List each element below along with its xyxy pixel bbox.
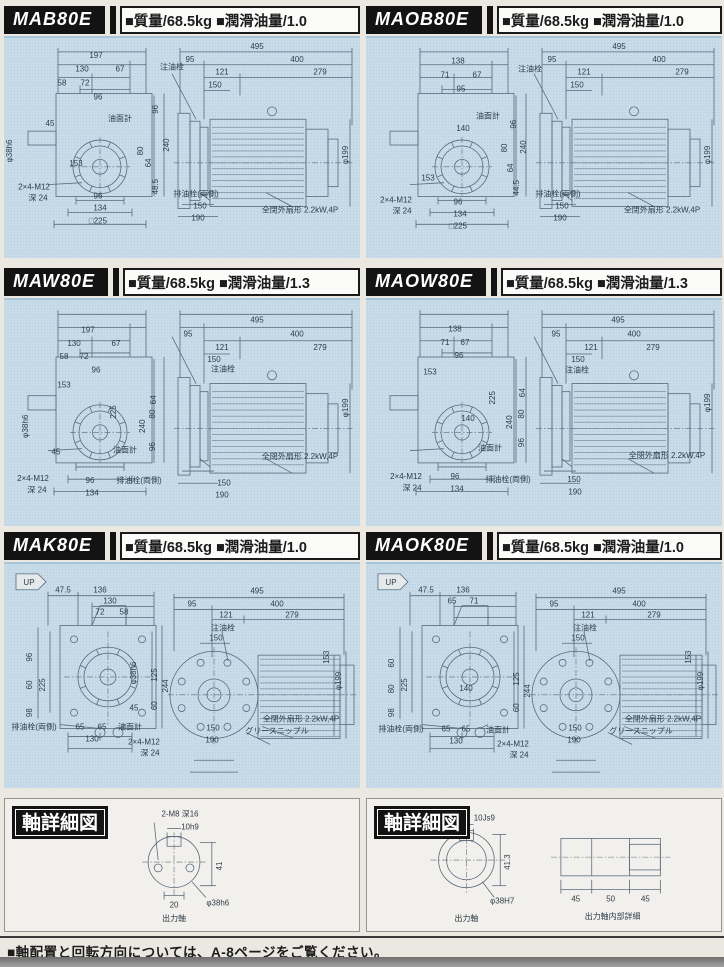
dim-label: 225 [488, 390, 497, 404]
dim-label: 98 [387, 708, 396, 717]
dim-label: 出力軸内部詳細 [585, 911, 641, 921]
dim-label: 190 [553, 213, 567, 222]
spec-label: ■質量/68.5kg ■潤滑油量/1.0 [497, 532, 722, 560]
dim-label: φ199 [696, 671, 705, 690]
model-label: MAB80E [4, 6, 105, 34]
dim-label: 197 [89, 51, 103, 60]
dim-label: 80 [136, 146, 145, 155]
dim-label: 150 [217, 478, 231, 487]
dim-label: グリースニップル [245, 726, 309, 736]
dim-label: 150 [208, 81, 222, 90]
dim-label: φ199 [703, 145, 712, 164]
dim-label: 153 [423, 367, 437, 376]
dim-label: 64 [144, 158, 153, 167]
dim-label: 240 [138, 419, 147, 433]
dim-label: φ38h6 [5, 139, 14, 162]
dim-label: 96 [151, 104, 160, 113]
dim-label: 190 [568, 487, 582, 496]
dim-label: 400 [652, 55, 666, 64]
technical-drawing-area: 19713067587296注油栓45油面計φ38h61532×4-M12深 2… [4, 36, 360, 258]
dim-label: 全閉外扇形 2.2kW,4P [624, 204, 700, 214]
dim-label: φ38h6 [129, 661, 138, 684]
technical-drawing: UP47.51361307258966098225φ38h64524412560… [4, 562, 360, 788]
shaft-detail-panel-left: 軸詳細図 2-M8 深1610h94120φ38h6出力軸 [4, 798, 360, 932]
dim-label: 150 [209, 633, 223, 642]
dim-label: 495 [250, 587, 264, 596]
dim-label: 注油栓 [573, 622, 597, 632]
dim-label: 96 [25, 652, 34, 661]
dimension-labels: 19713067587296注油栓45油面計φ38h61532×4-M12深 2… [5, 42, 350, 225]
model-panel-maow80e: MAOW80E ■質量/68.5kg ■潤滑油量/1.3 13871679615… [366, 268, 722, 526]
drawing-geometry [390, 48, 716, 228]
dimension-labels: 19713067587296153225φ38h6452×4-M12深 2496… [17, 315, 350, 499]
dim-label: 60 [387, 658, 396, 667]
dim-label: 2×4-M12 [128, 737, 160, 746]
dim-label: グリースニップル [609, 726, 673, 736]
dim-label: 225 [109, 405, 118, 419]
dimension-labels: UP47.5136657160809822514024412560排油栓(両側)… [378, 578, 705, 759]
shaft-detail-title: 軸詳細図 [374, 806, 470, 839]
dim-label: 油面計 [476, 110, 500, 120]
dim-label: 41 [215, 861, 224, 870]
dim-label: 197 [81, 326, 95, 335]
technical-drawing-area: UP47.5136657160809822514024412560排油栓(両側)… [366, 562, 722, 788]
model-label: MAOK80E [366, 532, 482, 560]
shaft-detail-title: 軸詳細図 [12, 806, 108, 839]
dim-label: 121 [581, 611, 595, 620]
dim-label: 72 [96, 608, 105, 617]
dim-label: 80 [387, 684, 396, 693]
spec-label: ■質量/68.5kg ■潤滑油量/1.0 [497, 6, 722, 34]
dim-label: 出力軸 [162, 913, 186, 923]
dim-label: 排油栓(両側) [11, 722, 57, 732]
panel-header: MAOB80E ■質量/68.5kg ■潤滑油量/1.0 [366, 6, 722, 34]
dim-label: 注油栓 [518, 64, 542, 74]
dim-label: 注油栓 [160, 62, 184, 72]
dim-label: 排油栓(両側) [378, 724, 424, 734]
dim-label: 400 [627, 330, 641, 339]
dim-label: 279 [646, 343, 660, 352]
dim-label: 150 [555, 201, 569, 210]
dimension-labels: 138716795140油面計96806424044.51532×4-M12深 … [380, 42, 712, 230]
dim-label: 153 [69, 159, 83, 168]
dim-label: 244 [523, 684, 532, 698]
dim-label: 138 [451, 57, 465, 66]
dim-label: 125 [512, 672, 521, 686]
dim-label: 80 [517, 409, 526, 419]
dim-label: φ199 [341, 398, 350, 417]
dim-label: 136 [93, 586, 107, 595]
dim-label: 45 [46, 119, 55, 128]
drawing-geometry [142, 823, 216, 900]
dim-label: φ38h6 [206, 898, 229, 907]
dim-label: 全閉外扇形 2.2kW,4P [629, 450, 705, 460]
technical-drawing-area: 138716795140油面計96806424044.51532×4-M12深 … [366, 36, 722, 258]
dim-label: 495 [250, 315, 264, 324]
dim-label: 96 [509, 119, 518, 128]
spec-label: ■質量/68.5kg ■潤滑油量/1.3 [501, 268, 722, 296]
model-label: MAOB80E [366, 6, 482, 34]
dim-label: 134 [93, 203, 107, 212]
dim-label: 油面計 [113, 445, 137, 455]
dim-label: 150 [571, 633, 585, 642]
dim-label: 95 [548, 55, 557, 64]
dim-label: 2×4-M12 [497, 739, 529, 748]
dim-label: 60 [512, 703, 521, 712]
dim-label: 出力軸 [455, 913, 479, 923]
dim-label: 153 [421, 174, 435, 183]
dim-label: 96 [454, 198, 463, 207]
dim-label: 95 [184, 330, 193, 339]
technical-drawing: 19713067587296153225φ38h6452×4-M12深 2496… [4, 298, 360, 526]
dim-label: 138 [448, 325, 462, 334]
shaft-detail-panel-right: 軸詳細図 10Js941.3φ38H7出力軸455045出力軸内部詳細 [366, 798, 722, 932]
dim-label: 2×4-M12 [390, 472, 422, 481]
dim-label: 排油栓(両側) [485, 474, 531, 484]
dim-label: 495 [250, 42, 264, 51]
dim-label: 41.3 [503, 854, 512, 870]
dim-label: □225 [449, 221, 468, 230]
dim-label: 130 [75, 65, 89, 74]
dim-label: 95 [550, 600, 559, 609]
dim-label: 65 [448, 597, 457, 606]
dim-label: φ199 [703, 393, 712, 412]
footer-rule [0, 936, 724, 938]
dim-label: 134 [85, 488, 99, 497]
dim-label: 45 [130, 704, 139, 713]
dimension-labels: UP47.51361307258966098225φ38h64524412560… [11, 578, 343, 757]
dim-label: 67 [116, 65, 125, 74]
dim-label: 72 [81, 79, 90, 88]
dim-label: φ199 [334, 671, 343, 690]
dim-label: 71 [441, 338, 450, 347]
dim-label: 190 [205, 735, 219, 744]
dim-label: 98 [25, 708, 34, 717]
dimension-labels: 2-M8 深1610h94120φ38h6出力軸 [161, 810, 229, 923]
dim-label: 60 [25, 680, 34, 689]
model-panel-maw80e: MAW80E ■質量/68.5kg ■潤滑油量/1.3 197130675872… [4, 268, 360, 526]
dim-label: 油面計 [118, 722, 142, 732]
dim-label: 96 [86, 476, 95, 485]
dim-label: 153 [684, 650, 693, 664]
dim-label: 排油栓(両側) [173, 189, 219, 199]
dim-label: 279 [285, 611, 299, 620]
row-2: MAW80E ■質量/68.5kg ■潤滑油量/1.3 197130675872… [0, 268, 724, 526]
dim-label: UP [385, 578, 396, 587]
dim-label: 96 [455, 351, 464, 360]
model-panel-maob80e: MAOB80E ■質量/68.5kg ■潤滑油量/1.0 13871679514… [366, 6, 722, 258]
spec-label: ■質量/68.5kg ■潤滑油量/1.0 [120, 532, 360, 560]
dim-label: 240 [505, 415, 514, 429]
dimension-labels: 10Js941.3φ38H7出力軸455045出力軸内部詳細 [455, 814, 651, 923]
dim-label: 150 [567, 475, 581, 484]
dim-label: 244 [161, 679, 170, 693]
dim-label: 130 [103, 597, 117, 606]
header-divider [110, 532, 116, 560]
model-label: MAK80E [4, 532, 105, 560]
dim-label: φ38H7 [490, 896, 514, 905]
dim-label: 67 [461, 338, 470, 347]
panel-header: MAK80E ■質量/68.5kg ■潤滑油量/1.0 [4, 532, 360, 560]
dim-label: 65 [98, 723, 107, 732]
dim-label: 深 24 [140, 748, 160, 757]
dim-label: 150 [571, 355, 585, 364]
panel-header: MAB80E ■質量/68.5kg ■潤滑油量/1.0 [4, 6, 360, 34]
dim-label: 2×4-M12 [380, 196, 412, 205]
model-label: MAW80E [4, 268, 108, 296]
dim-label: □225 [89, 216, 108, 225]
dim-label: 72 [80, 352, 89, 361]
header-divider [491, 268, 497, 296]
dim-label: 121 [577, 68, 591, 77]
dim-label: 150 [207, 355, 221, 364]
dim-label: 2-M8 深16 [161, 810, 199, 819]
dim-label: 121 [215, 343, 229, 352]
technical-drawing: UP47.5136657160809822514024412560排油栓(両側)… [366, 562, 722, 788]
spec-label: ■質量/68.5kg ■潤滑油量/1.0 [120, 6, 360, 34]
dim-label: 400 [270, 600, 284, 609]
dim-label: 190 [215, 490, 229, 499]
dim-label: φ199 [341, 145, 350, 164]
dim-label: 44.5 [512, 179, 521, 195]
dim-label: 10Js9 [474, 814, 496, 823]
dim-label: 油面計 [108, 113, 132, 123]
dim-label: 67 [112, 339, 121, 348]
dim-label: 240 [162, 138, 171, 152]
dim-label: 134 [450, 484, 464, 493]
bottom-bar [0, 957, 724, 967]
row-3: MAK80E ■質量/68.5kg ■潤滑油量/1.0 UP47.5136130… [0, 532, 724, 788]
header-divider [113, 268, 119, 296]
model-label: MAOW80E [366, 268, 486, 296]
dim-label: 130 [449, 736, 463, 745]
dim-label: 注油栓 [565, 364, 589, 374]
dim-label: 150 [568, 724, 582, 733]
dim-label: 47.5 [55, 586, 71, 595]
dim-label: 全閉外扇形 2.2kW,4P [262, 451, 338, 461]
dim-label: 45 [571, 894, 580, 903]
dim-label: UP [23, 578, 34, 587]
spec-label: ■質量/68.5kg ■潤滑油量/1.3 [123, 268, 360, 296]
dim-label: 71 [441, 71, 450, 80]
dim-label: 排油栓(両側) [535, 189, 581, 199]
model-panel-mab80e: MAB80E ■質量/68.5kg ■潤滑油量/1.0 197130675872… [4, 6, 360, 258]
dim-label: 全閉外扇形 2.2kW,4P [263, 714, 339, 724]
dim-label: 130 [67, 339, 81, 348]
dim-label: 58 [120, 608, 129, 617]
dim-label: 279 [313, 343, 327, 352]
dim-label: 240 [519, 140, 528, 154]
dim-label: 45 [52, 448, 61, 457]
drawing-geometry [16, 574, 356, 772]
dim-label: 130 [85, 734, 99, 743]
dim-label: 153 [322, 650, 331, 664]
dim-label: 71 [470, 597, 479, 606]
dim-label: 279 [647, 611, 661, 620]
dim-label: 400 [632, 600, 646, 609]
technical-drawing: 138716796153225140油面計2×4-M12深 2496134排油栓… [366, 298, 722, 526]
dim-label: 64 [506, 163, 515, 172]
dim-label: 95 [457, 85, 466, 94]
technical-drawing-area: 138716796153225140油面計2×4-M12深 2496134排油栓… [366, 298, 722, 526]
dim-label: 96 [94, 192, 103, 201]
dim-label: 2×4-M12 [17, 474, 49, 483]
dim-label: 10h9 [181, 823, 199, 832]
dim-label: 495 [612, 587, 626, 596]
dim-label: 140 [459, 684, 473, 693]
dim-label: 190 [567, 735, 581, 744]
header-divider [487, 6, 493, 34]
dim-label: 50 [606, 894, 615, 903]
dim-label: 64 [149, 395, 158, 405]
dim-label: 58 [58, 79, 67, 88]
dim-label: 134 [453, 209, 467, 218]
panel-header: MAW80E ■質量/68.5kg ■潤滑油量/1.3 [4, 268, 360, 296]
dim-label: 95 [188, 600, 197, 609]
dim-label: 495 [611, 315, 625, 324]
dim-label: 279 [313, 68, 327, 77]
dim-label: 排油栓(両側) [116, 475, 162, 485]
drawing-geometry [378, 574, 718, 772]
model-panel-mak80e: MAK80E ■質量/68.5kg ■潤滑油量/1.0 UP47.5136130… [4, 532, 360, 788]
dim-label: 注油栓 [211, 622, 235, 632]
row-1: MAB80E ■質量/68.5kg ■潤滑油量/1.0 197130675872… [0, 6, 724, 258]
dim-label: 96 [517, 437, 526, 447]
dim-label: 495 [612, 42, 626, 51]
technical-drawing: 138716795140油面計96806424044.51532×4-M12深 … [366, 36, 722, 258]
dim-label: 136 [456, 586, 470, 595]
dim-label: 400 [290, 330, 304, 339]
dim-label: 深 24 [28, 194, 48, 203]
dim-label: 65 [76, 723, 85, 732]
dim-label: 深 24 [509, 750, 529, 759]
dim-label: 225 [400, 678, 409, 692]
dim-label: 121 [584, 343, 598, 352]
dim-label: 190 [191, 213, 205, 222]
dim-label: 48.5 [151, 178, 160, 194]
dim-label: 65 [462, 725, 471, 734]
dim-label: 64 [518, 388, 527, 398]
panel-header: MAOK80E ■質量/68.5kg ■潤滑油量/1.0 [366, 532, 722, 560]
dim-label: 225 [38, 678, 47, 692]
technical-drawing-area: UP47.51361307258966098225φ38h64524412560… [4, 562, 360, 788]
dim-label: 47.5 [418, 586, 434, 595]
dim-label: 深 24 [27, 485, 47, 494]
dim-label: 20 [170, 900, 179, 909]
dim-label: 45 [641, 894, 650, 903]
dim-label: 140 [456, 124, 470, 133]
dim-label: 95 [552, 330, 561, 339]
dim-label: 58 [60, 352, 69, 361]
header-divider [487, 532, 493, 560]
dim-label: 96 [94, 92, 103, 101]
dim-label: 全閉外扇形 2.2kW,4P [625, 714, 701, 724]
dim-label: 150 [206, 724, 220, 733]
technical-drawing-area: 19713067587296153225φ38h6452×4-M12深 2496… [4, 298, 360, 526]
dim-label: 150 [193, 201, 207, 210]
dim-label: 80 [500, 143, 509, 152]
dim-label: 80 [148, 409, 157, 419]
dim-label: 95 [186, 55, 195, 64]
dim-label: φ38h6 [21, 414, 30, 438]
dim-label: 油面計 [478, 443, 502, 453]
panel-header: MAOW80E ■質量/68.5kg ■潤滑油量/1.3 [366, 268, 722, 296]
dim-label: 全閉外扇形 2.2kW,4P [262, 204, 338, 214]
dim-label: 153 [57, 381, 71, 390]
dim-label: 注油栓 [211, 363, 235, 373]
dim-label: 150 [570, 81, 584, 90]
dim-label: 96 [451, 472, 460, 481]
dim-label: 140 [461, 414, 475, 423]
dim-label: 96 [148, 442, 157, 452]
technical-drawing: 19713067587296注油栓45油面計φ38h61532×4-M12深 2… [4, 36, 360, 258]
dim-label: 121 [215, 68, 229, 77]
dim-label: 279 [675, 68, 689, 77]
dim-label: 深 24 [402, 483, 422, 492]
dim-label: 400 [290, 55, 304, 64]
catalog-page: MAB80E ■質量/68.5kg ■潤滑油量/1.0 197130675872… [0, 0, 724, 967]
model-panel-maok80e: MAOK80E ■質量/68.5kg ■潤滑油量/1.0 UP47.513665… [366, 532, 722, 788]
dim-label: 油面計 [486, 725, 510, 735]
dim-label: 60 [150, 701, 159, 710]
drawing-geometry [28, 48, 354, 228]
dim-label: 65 [442, 725, 451, 734]
dim-label: 2×4-M12 [18, 183, 50, 192]
dim-label: 125 [150, 668, 159, 682]
dim-label: 96 [92, 365, 101, 374]
dim-label: 121 [219, 611, 233, 620]
dim-label: 深 24 [392, 206, 412, 215]
header-divider [110, 6, 116, 34]
dim-label: 67 [473, 71, 482, 80]
